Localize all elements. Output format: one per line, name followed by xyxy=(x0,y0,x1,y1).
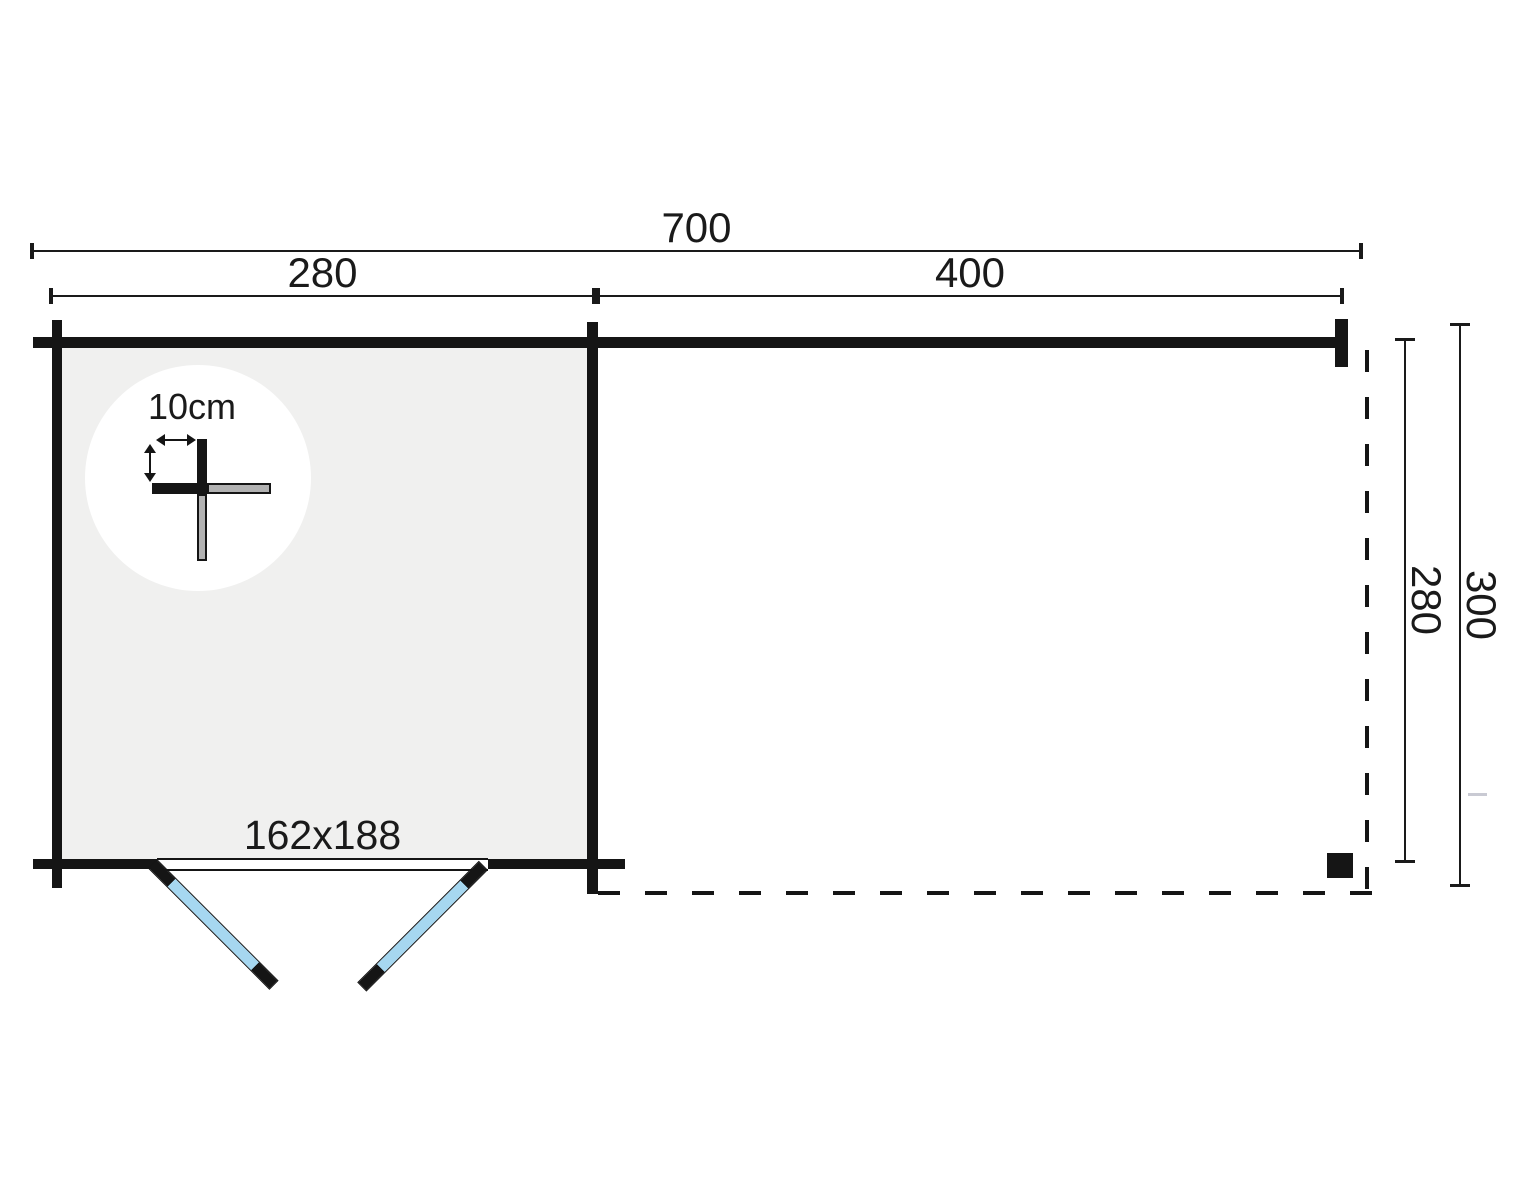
wall-bottom-left-segment xyxy=(33,859,157,869)
detail-log-gray-horizontal xyxy=(207,483,271,494)
canopy-dashed-right-edge xyxy=(1365,350,1369,895)
dim-line-canopy-width xyxy=(596,295,1344,297)
dim-label-cabin-width: 280 xyxy=(49,252,596,294)
detail-log-gray-vertical xyxy=(197,494,207,561)
faint-tick-mark xyxy=(1468,793,1487,796)
wall-bottom-right-segment xyxy=(488,859,625,869)
thickness-arrow-horizontal-icon xyxy=(164,439,188,441)
wall-cabin-right xyxy=(587,322,598,894)
wall-left xyxy=(52,320,62,888)
floor-plan-canvas: 700 280 400 280 300 10cm 162x188 xyxy=(0,0,1530,1188)
door-threshold xyxy=(157,858,488,871)
dim-label-depth-inner: 280 xyxy=(1405,530,1447,670)
wall-thickness-label: 10cm xyxy=(148,389,236,425)
dim-label-canopy-width: 400 xyxy=(596,252,1344,294)
door-size-label: 162x188 xyxy=(157,815,488,856)
wall-top xyxy=(33,337,1348,348)
canopy-dashed-bottom-edge xyxy=(598,891,1373,895)
thickness-arrow-vertical-icon xyxy=(149,452,151,474)
door-leaf-right xyxy=(357,861,488,992)
dim-label-depth-outer: 300 xyxy=(1460,535,1502,675)
dim-label-total-width: 700 xyxy=(30,207,1363,249)
dim-line-cabin-width xyxy=(49,295,596,297)
wall-canopy-end-stub xyxy=(1335,319,1348,367)
canopy-support-post xyxy=(1327,853,1353,878)
detail-log-black-horizontal xyxy=(152,483,207,494)
door-leaf-left xyxy=(148,859,279,990)
